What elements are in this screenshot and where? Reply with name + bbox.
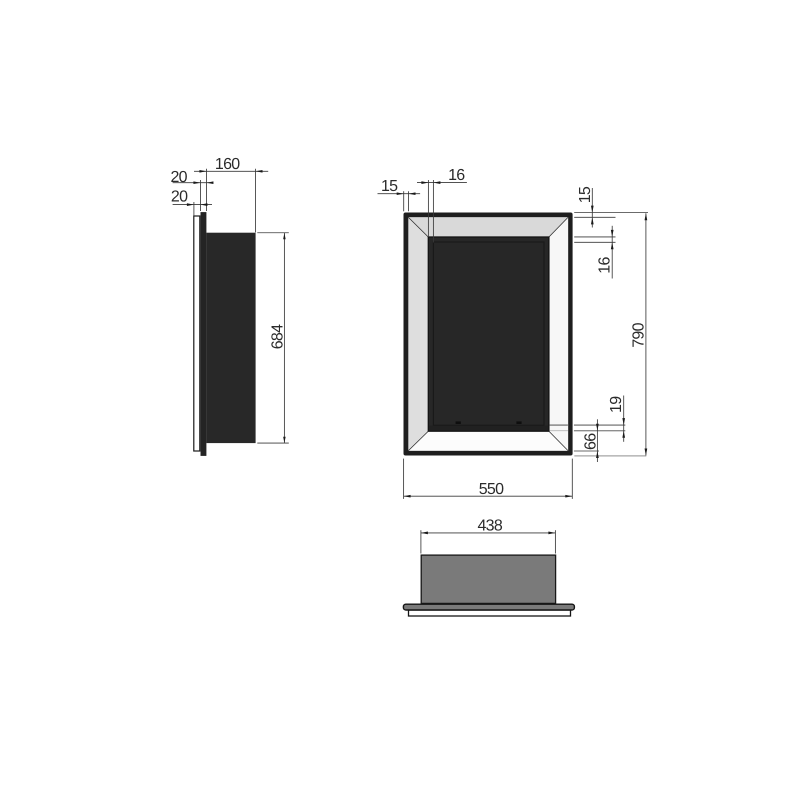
svg-text:19: 19 bbox=[608, 396, 625, 413]
svg-text:20: 20 bbox=[170, 169, 187, 186]
svg-text:16: 16 bbox=[597, 257, 614, 274]
svg-text:20: 20 bbox=[171, 188, 188, 205]
svg-text:684: 684 bbox=[269, 324, 286, 349]
svg-text:790: 790 bbox=[630, 322, 647, 347]
svg-text:16: 16 bbox=[448, 167, 465, 184]
svg-text:15: 15 bbox=[381, 178, 398, 195]
svg-text:160: 160 bbox=[215, 156, 240, 173]
svg-text:66: 66 bbox=[582, 433, 599, 450]
svg-text:550: 550 bbox=[479, 481, 504, 498]
svg-text:438: 438 bbox=[477, 517, 502, 534]
svg-text:15: 15 bbox=[577, 186, 594, 203]
